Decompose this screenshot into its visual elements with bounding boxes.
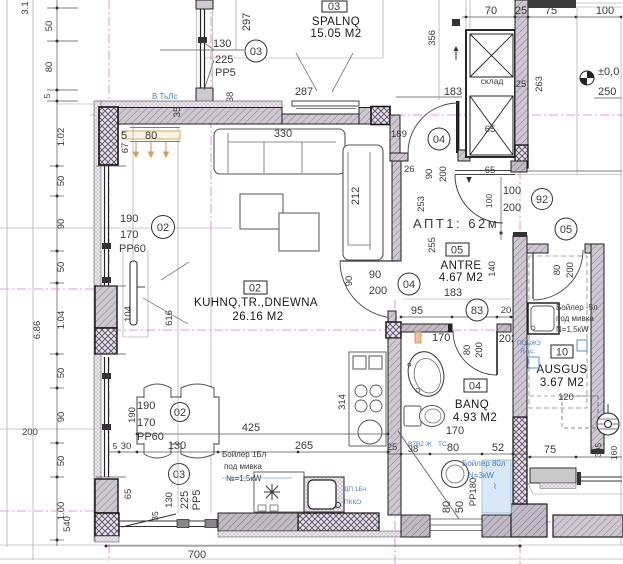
svg-text:ПККО: ПККО <box>344 499 361 506</box>
svg-text:253: 253 <box>416 196 427 212</box>
svg-text:540: 540 <box>62 516 73 532</box>
svg-text:03: 03 <box>173 469 185 481</box>
svg-text:KUHNQ,TR.,DNEWNA: KUHNQ,TR.,DNEWNA <box>194 297 318 309</box>
svg-text:120: 120 <box>558 392 574 403</box>
svg-text:50: 50 <box>454 501 466 513</box>
svg-text:90: 90 <box>424 169 435 180</box>
svg-text:212: 212 <box>350 187 362 205</box>
svg-text:5: 5 <box>121 130 127 142</box>
svg-text:200: 200 <box>474 342 485 358</box>
svg-text:05: 05 <box>560 224 572 236</box>
svg-text:90: 90 <box>56 219 67 230</box>
svg-text:26.16 M2: 26.16 M2 <box>232 311 283 323</box>
svg-text:183: 183 <box>444 86 462 98</box>
svg-text:PP5: PP5 <box>191 490 203 511</box>
svg-text:95: 95 <box>411 305 423 317</box>
svg-text:90: 90 <box>369 269 381 281</box>
svg-text:200: 200 <box>565 262 576 278</box>
svg-text:170: 170 <box>120 229 138 241</box>
svg-text:65: 65 <box>485 124 496 135</box>
svg-text:50: 50 <box>56 262 67 273</box>
svg-text:склад: склад <box>481 76 504 86</box>
svg-text:616: 616 <box>164 310 175 326</box>
svg-text:250: 250 <box>598 86 616 98</box>
svg-text:3.67 M2: 3.67 M2 <box>540 377 584 389</box>
svg-text:02: 02 <box>249 283 261 295</box>
svg-text:35: 35 <box>172 107 183 118</box>
svg-text:305: 305 <box>593 443 603 457</box>
svg-text:15.05 M2: 15.05 M2 <box>310 28 361 40</box>
svg-text:10: 10 <box>556 347 568 359</box>
svg-text:297: 297 <box>241 13 253 31</box>
svg-text:75: 75 <box>545 5 557 17</box>
svg-text:80: 80 <box>462 345 473 356</box>
svg-text:5: 5 <box>113 441 118 451</box>
svg-text:ANTRE: ANTRE <box>441 260 482 272</box>
svg-text:Бойлер 1Бл: Бойлер 1Бл <box>222 450 267 459</box>
svg-text:200: 200 <box>438 166 449 182</box>
svg-text:80: 80 <box>552 265 563 276</box>
svg-text:SPALNQ: SPALNQ <box>312 16 360 28</box>
svg-text:90: 90 <box>56 412 67 423</box>
svg-text:03: 03 <box>328 1 340 13</box>
svg-text:92: 92 <box>536 194 548 206</box>
svg-text:100: 100 <box>484 194 494 208</box>
svg-text:160: 160 <box>609 446 619 460</box>
svg-text:50: 50 <box>56 176 67 187</box>
svg-text:6.86: 6.86 <box>32 321 43 340</box>
svg-text:PP60: PP60 <box>137 431 164 443</box>
svg-text:189: 189 <box>391 129 407 140</box>
svg-text:АПТ1: 62м: АПТ1: 62м <box>413 216 499 231</box>
svg-text:130: 130 <box>213 38 231 50</box>
svg-text:38: 38 <box>408 444 419 455</box>
svg-text:±0,0: ±0,0 <box>598 66 619 78</box>
svg-text:02: 02 <box>174 407 186 419</box>
svg-text:50: 50 <box>56 456 67 467</box>
svg-text:52: 52 <box>492 442 504 454</box>
svg-text:170: 170 <box>446 425 464 437</box>
svg-text:04: 04 <box>433 134 445 146</box>
svg-text:под мивка: под мивка <box>224 462 262 471</box>
svg-text:50: 50 <box>44 21 55 32</box>
svg-text:255: 255 <box>427 237 438 253</box>
svg-text:25: 25 <box>515 5 527 17</box>
svg-text:20: 20 <box>501 305 512 316</box>
svg-text:356: 356 <box>427 30 438 46</box>
svg-text:50: 50 <box>56 368 67 379</box>
svg-text:PP180: PP180 <box>468 478 479 507</box>
svg-text:170: 170 <box>432 332 450 344</box>
svg-text:4.93 M2: 4.93 M2 <box>453 412 497 424</box>
svg-text:В ТьЛс: В ТьЛс <box>152 92 178 101</box>
svg-text:03: 03 <box>250 46 262 58</box>
svg-text:26: 26 <box>404 164 415 175</box>
svg-text:30: 30 <box>121 441 132 452</box>
svg-text:1.04: 1.04 <box>56 311 67 330</box>
svg-text:под мивка: под мивка <box>556 314 594 323</box>
svg-text:N=1,5кW: N=1,5кW <box>556 325 589 334</box>
svg-text:65: 65 <box>485 165 496 176</box>
svg-text:Я 1с.: Я 1с. <box>520 348 535 355</box>
svg-text:PP5: PP5 <box>215 67 236 79</box>
svg-text:05: 05 <box>451 245 463 257</box>
svg-text:№=1,5кW: №=1,5кW <box>226 474 262 483</box>
svg-text:04: 04 <box>469 381 481 393</box>
svg-text:80: 80 <box>441 501 453 513</box>
svg-text:190: 190 <box>120 213 138 225</box>
svg-text:90: 90 <box>344 276 355 287</box>
svg-text:04: 04 <box>403 279 415 291</box>
svg-text:75: 75 <box>544 444 556 456</box>
svg-text:67: 67 <box>120 143 131 154</box>
svg-text:287: 287 <box>295 86 313 98</box>
svg-text:1.02: 1.02 <box>56 128 67 147</box>
svg-text:330: 330 <box>274 128 292 140</box>
svg-text:140: 140 <box>487 261 498 277</box>
svg-text:70: 70 <box>485 5 497 17</box>
svg-text:190: 190 <box>137 400 155 412</box>
svg-text:700: 700 <box>188 549 206 561</box>
svg-text:200: 200 <box>503 202 521 214</box>
svg-text:ДП 1Бч: ДП 1Бч <box>344 486 366 493</box>
svg-text:80: 80 <box>447 442 459 454</box>
svg-text:225: 225 <box>179 491 191 509</box>
svg-text:Бойлер -5л: Бойлер -5л <box>556 303 598 312</box>
svg-text:80: 80 <box>145 130 157 142</box>
svg-text:100: 100 <box>503 185 521 197</box>
svg-text:35: 35 <box>150 511 160 521</box>
svg-text:65: 65 <box>123 489 134 500</box>
svg-text:BANQ: BANQ <box>455 399 489 411</box>
svg-text:265: 265 <box>295 440 313 452</box>
svg-text:225: 225 <box>215 54 233 66</box>
svg-text:263: 263 <box>534 76 545 92</box>
svg-text:83: 83 <box>471 305 483 317</box>
svg-text:⌇: ⌇ <box>493 482 497 491</box>
svg-text:ПОВЖЗ: ПОВЖЗ <box>517 340 541 347</box>
svg-text:25: 25 <box>516 79 527 90</box>
svg-text:4.67 M2: 4.67 M2 <box>439 272 483 284</box>
svg-text:200: 200 <box>369 285 387 297</box>
svg-text:170: 170 <box>137 417 155 429</box>
svg-text:AUSGUS: AUSGUS <box>537 364 588 376</box>
svg-text:Бойлер 80л: Бойлер 80л <box>462 459 506 468</box>
svg-text:130: 130 <box>164 492 175 508</box>
svg-text:3.1: 3.1 <box>20 1 31 14</box>
svg-text:200: 200 <box>22 427 38 438</box>
svg-text:314: 314 <box>337 394 348 410</box>
svg-text:425: 425 <box>242 422 260 434</box>
svg-text:02: 02 <box>157 222 169 234</box>
svg-text:5: 5 <box>43 93 52 98</box>
svg-text:130: 130 <box>168 440 186 452</box>
svg-text:183: 183 <box>444 287 462 299</box>
svg-text:80: 80 <box>44 62 55 73</box>
